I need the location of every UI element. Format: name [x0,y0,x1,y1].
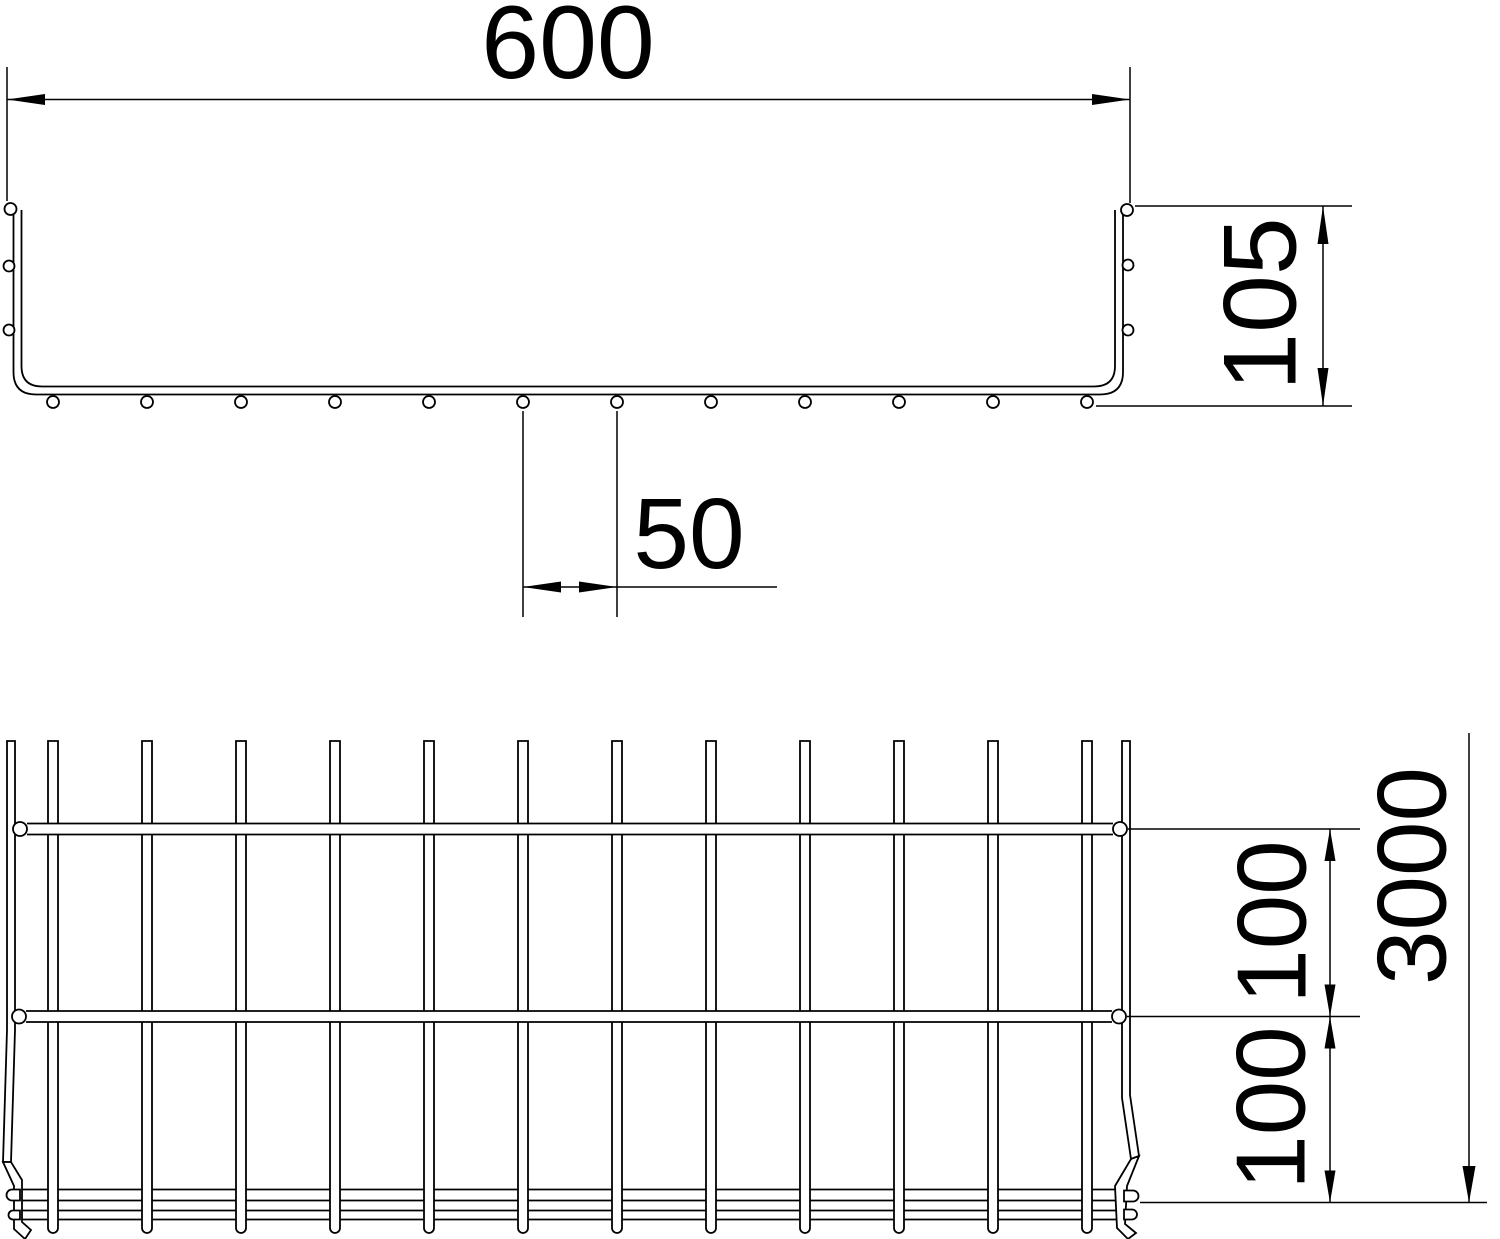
longitudinal-wire [48,741,58,1233]
longitudinal-wire [706,741,716,1233]
bottom-wire-cross-section [799,396,811,408]
wire-end-cap [1113,822,1127,836]
longitudinal-wire [800,741,810,1233]
dim-label-height: 105 [1202,217,1318,391]
dim-height-105: 105 [1096,206,1352,406]
dim-width-600: 600 [7,0,1130,203]
bottom-wire-cross-section [611,396,623,408]
bottom-wire-cross-section [235,396,247,408]
tray-profile-outer [14,207,1124,395]
bottom-wire-cross-section [987,396,999,408]
bottom-wire-cross-section [423,396,435,408]
side-wire-right-upper [1123,260,1134,271]
dim-length-3000: 3000 [1356,733,1475,1203]
dim-label-pitch-lower: 100 [1215,1026,1325,1190]
wire-end-cap [1112,1010,1126,1024]
mesh-cable-tray-drawing: 600 105 50 [0,0,1500,1239]
longitudinal-wire [142,741,152,1233]
longitudinal-wires-plan [48,741,1092,1233]
arrowhead-right [1092,94,1130,105]
arrowhead-down [1325,1171,1336,1203]
rim-wire-left [5,203,17,215]
longitudinal-wire [236,741,246,1233]
dim-label-width: 600 [481,0,655,101]
plan-view [3,741,1139,1239]
arrowhead-up [1318,206,1329,244]
bottom-wire-cross-section [47,396,59,408]
wire-end-stub [1124,1210,1137,1220]
longitudinal-wire [518,741,528,1233]
arrowhead-left [7,94,45,105]
arrowhead-down [1463,1166,1476,1203]
arrowhead-up [1325,1017,1336,1049]
end-transverse-wire-pair [20,1190,1124,1220]
edge-wire-right [1115,741,1139,1239]
dim-label-length: 3000 [1356,767,1466,985]
longitudinal-wire [330,741,340,1233]
arrowhead-down [1318,368,1329,406]
wire-end-cap [12,1010,26,1024]
edge-wire-left [3,741,31,1239]
longitudinal-wire [894,741,904,1233]
rim-wire-right [1121,204,1133,216]
bottom-wire-cross-section [141,396,153,408]
arrowhead-left [523,582,561,593]
longitudinal-wire [612,741,622,1233]
cross-section-view [4,203,1134,408]
wire-end-stub [9,1211,21,1220]
bottom-wire-cross-section [705,396,717,408]
bottom-wires-cross-section [47,396,1093,408]
edge-wire-right-body [1122,741,1139,1159]
tray-profile-inner [22,210,1116,387]
transverse-wire-1 [13,822,1127,836]
dim-wire-spacing-50: 50 [523,411,777,617]
side-wire-right-lower [1123,325,1134,336]
edge-wire-left-body [3,741,15,1162]
dim-label-wire-spacing: 50 [633,478,744,590]
side-wire-left-lower [4,325,15,336]
arrowhead-right [579,582,617,593]
side-wire-left-upper [4,261,15,272]
bottom-wire-cross-section [517,396,529,408]
bottom-wire-cross-section [893,396,905,408]
technical-drawing-page: 600 105 50 [0,0,1500,1239]
bottom-wire-cross-section [329,396,341,408]
longitudinal-wire [1082,741,1092,1233]
longitudinal-wire [424,741,434,1233]
wire-end-stub [7,1190,21,1201]
transverse-wire-2 [12,1010,1126,1024]
wire-end-stub [1124,1191,1139,1202]
dim-label-pitch-upper: 100 [1216,840,1326,1004]
longitudinal-wire [988,741,998,1233]
bottom-wire-cross-section [1081,396,1093,408]
wire-end-cap [13,822,27,836]
